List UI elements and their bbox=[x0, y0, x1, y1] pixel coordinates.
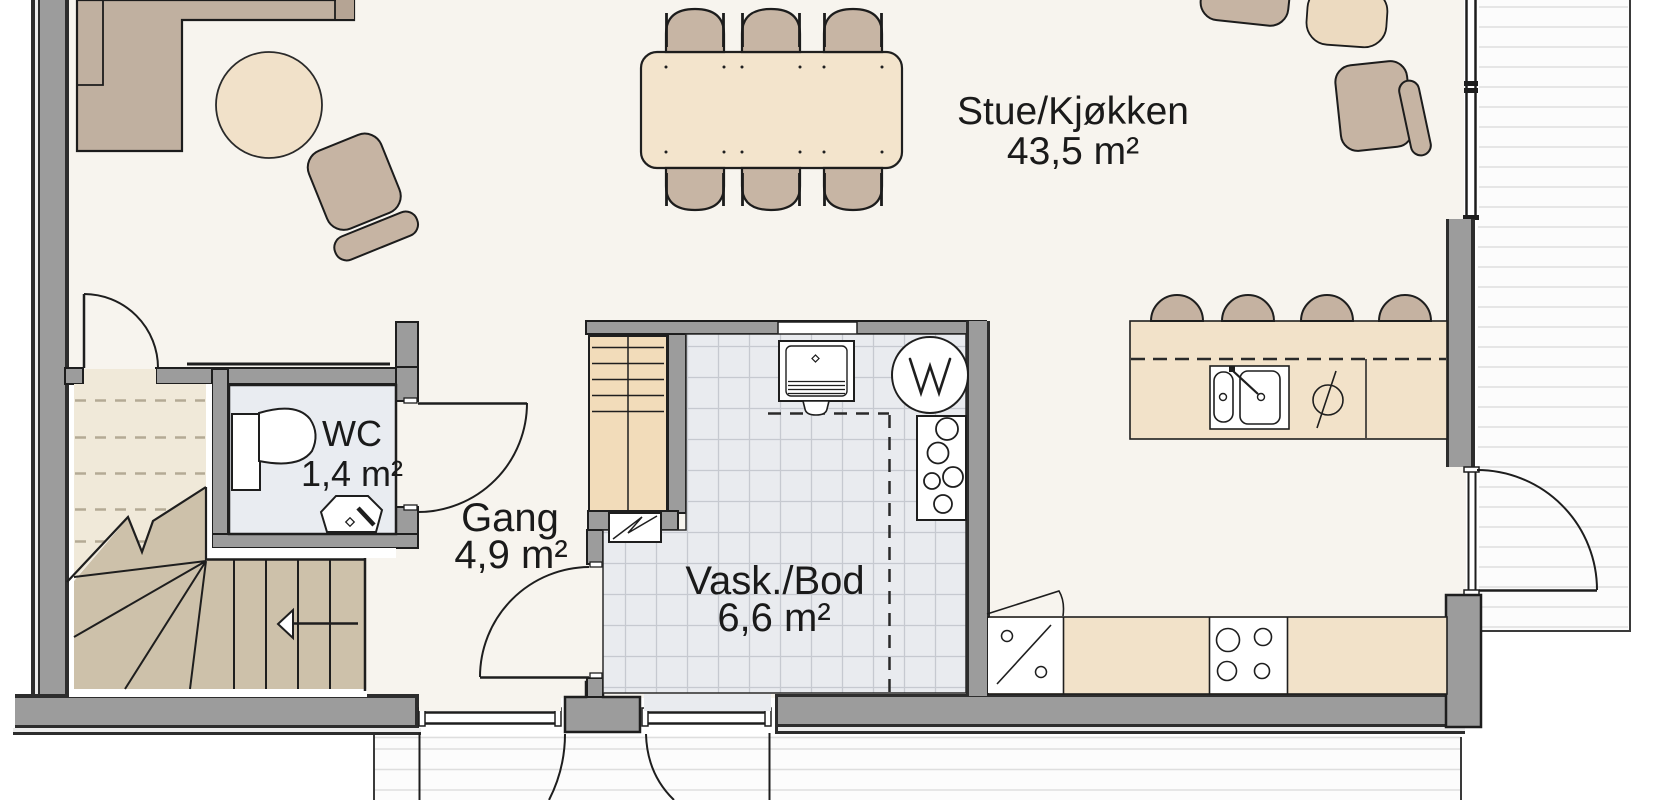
svg-text:6,6 m²: 6,6 m² bbox=[717, 596, 830, 640]
svg-text:1,4 m²: 1,4 m² bbox=[301, 453, 403, 494]
svg-text:Stue/Kjøkken: Stue/Kjøkken bbox=[957, 90, 1189, 133]
svg-text:4,9 m²: 4,9 m² bbox=[454, 533, 567, 577]
svg-text:43,5 m²: 43,5 m² bbox=[1007, 130, 1139, 173]
svg-text:WC: WC bbox=[322, 413, 382, 454]
